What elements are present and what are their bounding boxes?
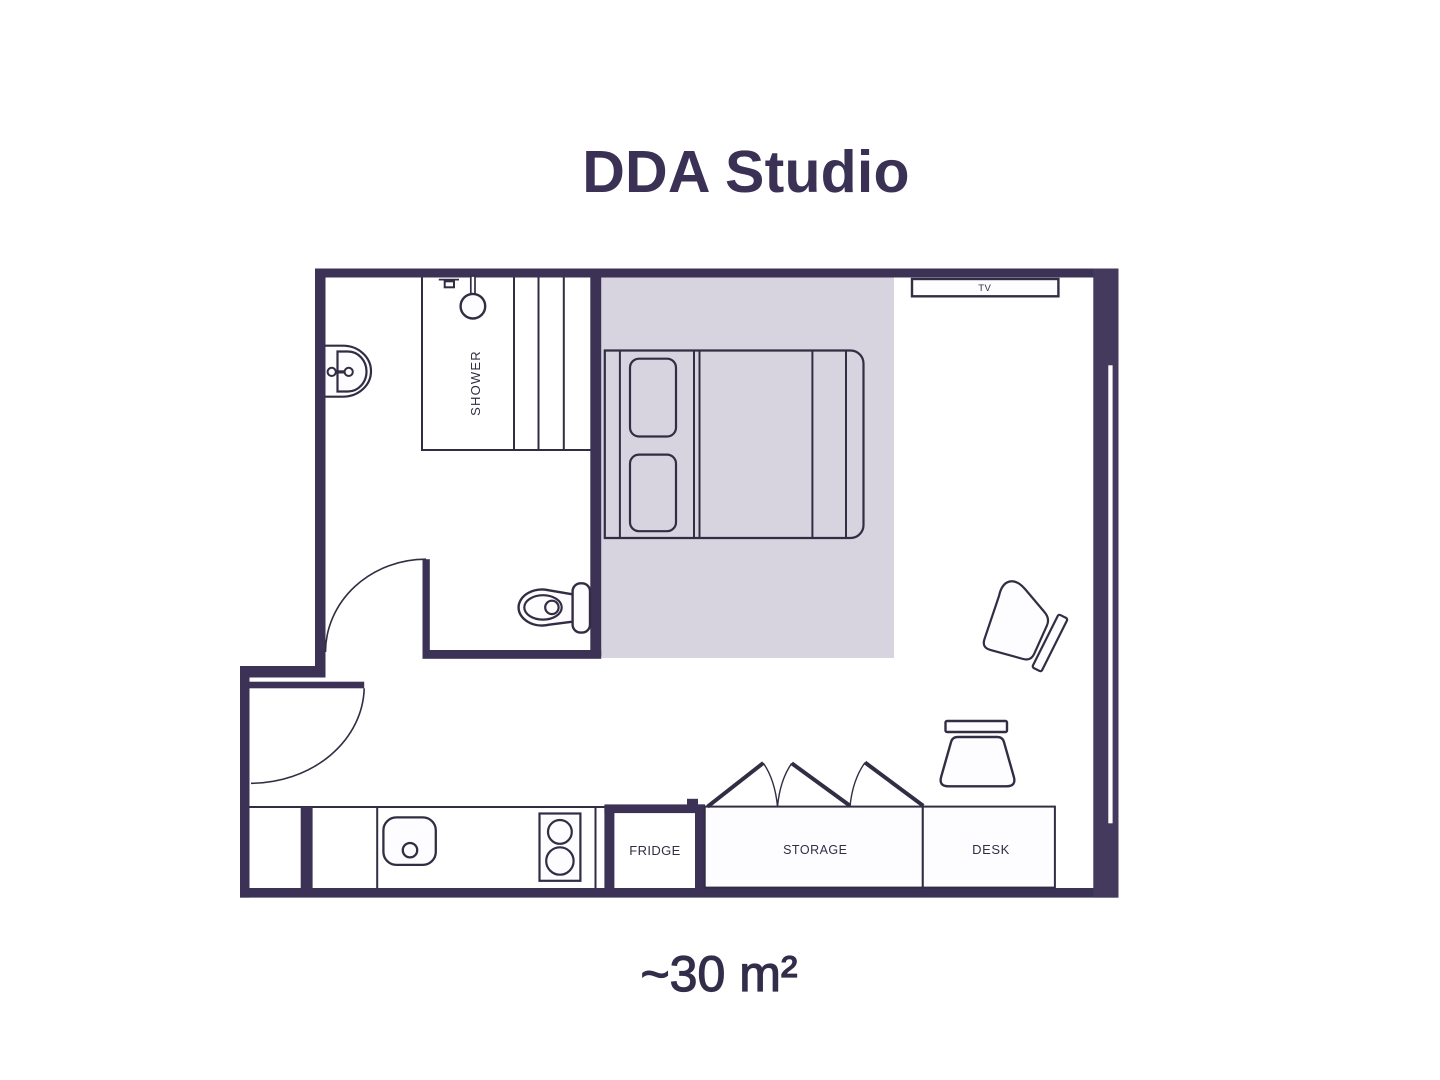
svg-text:~30 m²: ~30 m² <box>640 946 797 1002</box>
svg-text:FRIDGE: FRIDGE <box>629 843 681 858</box>
svg-text:DDA Studio: DDA Studio <box>582 139 910 205</box>
svg-text:SHOWER: SHOWER <box>468 350 483 416</box>
svg-text:STORAGE: STORAGE <box>783 843 847 857</box>
svg-text:DESK: DESK <box>972 842 1010 857</box>
svg-text:TV: TV <box>978 283 991 294</box>
